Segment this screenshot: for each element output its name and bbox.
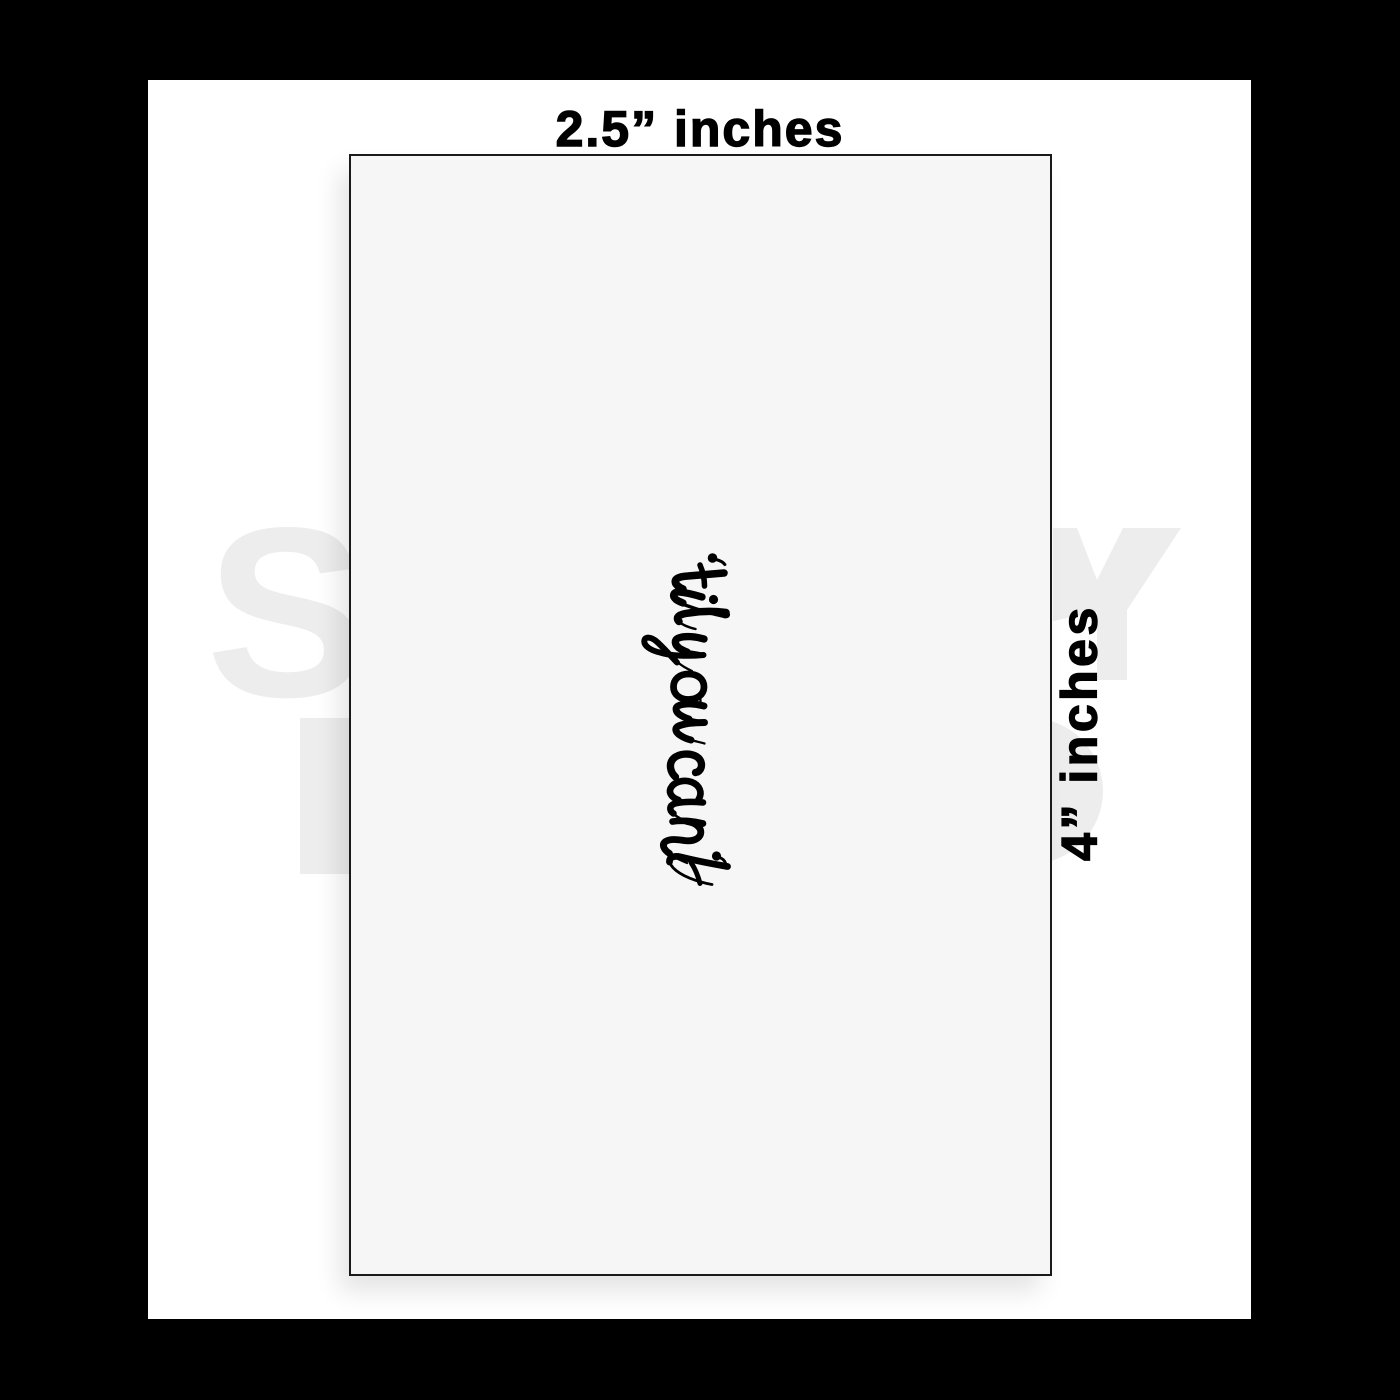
svg-text:S: S <box>206 478 367 748</box>
